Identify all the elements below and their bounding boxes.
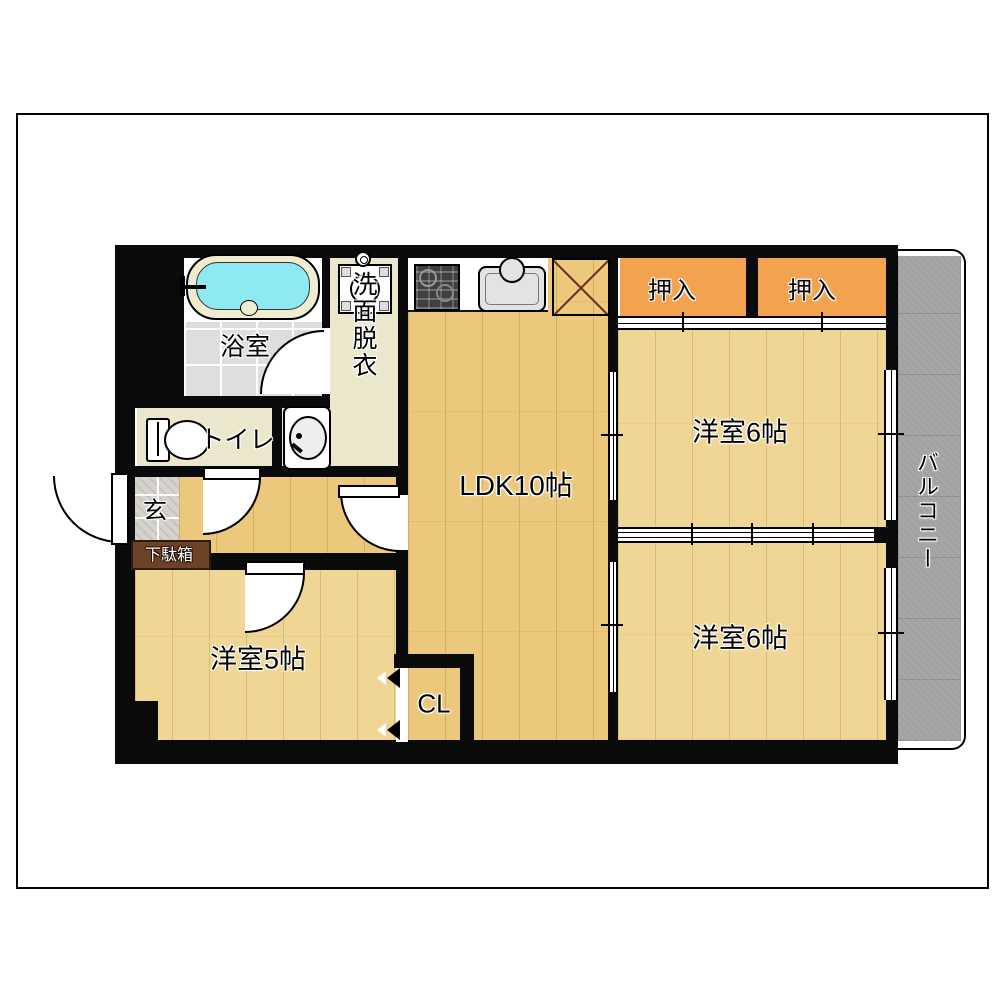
oshiire-sliding-door <box>618 316 886 330</box>
entrance-door-leaf <box>111 473 129 545</box>
toilet-door-leaf <box>203 467 261 480</box>
window-room6-top <box>884 370 898 520</box>
oshiire-right-label: 押入 <box>788 271 836 306</box>
ldk-label: LDK10帖 <box>459 464 573 504</box>
ldk-room-sliding-door-upper <box>608 372 618 500</box>
wall-bottom <box>115 740 898 764</box>
western-room6-bottom-label: 洋室6帖 <box>692 617 788 656</box>
track-tick <box>682 312 684 332</box>
faucet-icon <box>499 257 525 283</box>
wall-divider-mid <box>608 500 618 562</box>
window-room6-bottom <box>884 568 898 700</box>
stove-icon <box>414 264 460 311</box>
wall-cl-right <box>460 654 474 742</box>
ldk-door-leaf <box>338 485 400 498</box>
wall-hall-top <box>133 466 408 477</box>
western-room6-top-label: 洋室6帖 <box>692 411 788 450</box>
wall-partition-right-end <box>874 527 898 543</box>
western-room5-label: 洋室5帖 <box>210 638 306 677</box>
bathtub-icon <box>186 254 320 320</box>
wall-washroom-right <box>398 250 408 466</box>
wall-hall-ldk-lower <box>396 550 408 658</box>
track-tick <box>812 523 814 545</box>
floor-plan-canvas: 浴室 洗面脱衣 トイレ 玄 下駄箱 LDK10帖 押入 押入 洋室6帖 洋室6帖… <box>0 0 1000 1000</box>
washbasin-icon <box>283 406 331 470</box>
room-partition-sliding-door <box>618 527 874 543</box>
burner-icon <box>419 269 437 287</box>
ldk-room-sliding-door-lower <box>608 562 618 692</box>
entrance-label: 玄 <box>143 491 167 526</box>
window-tick <box>878 433 904 435</box>
closet-folding-door-icon <box>387 668 400 688</box>
track-tick <box>601 434 623 436</box>
track-tick <box>821 312 823 332</box>
track-tick <box>601 624 623 626</box>
wall-oshiire-divider <box>746 256 758 318</box>
washroom-label: 洗面脱衣 <box>345 271 381 379</box>
track-tick <box>691 523 693 545</box>
toilet-label: トイレ <box>199 420 274 456</box>
wall-divider-bottom <box>608 692 618 742</box>
wall-corner-notch <box>115 701 158 742</box>
refrigerator-space-icon <box>552 258 610 316</box>
bathroom-label: 浴室 <box>220 327 270 363</box>
wall-upper-left-mass <box>115 245 184 402</box>
shoe-cabinet-label: 下駄箱 <box>145 541 193 565</box>
bath-faucet-icon <box>180 276 185 296</box>
western-room5-door-leaf <box>245 561 305 575</box>
oshiire-left-label: 押入 <box>648 271 696 306</box>
window-tick <box>878 632 904 634</box>
track-tick <box>751 523 753 545</box>
closet-folding-door-icon <box>387 720 400 740</box>
washer-tap-icon <box>355 251 371 267</box>
closet-label: CL <box>417 689 450 720</box>
burner-icon <box>436 284 454 302</box>
balcony-label: バルコニー <box>910 451 942 571</box>
